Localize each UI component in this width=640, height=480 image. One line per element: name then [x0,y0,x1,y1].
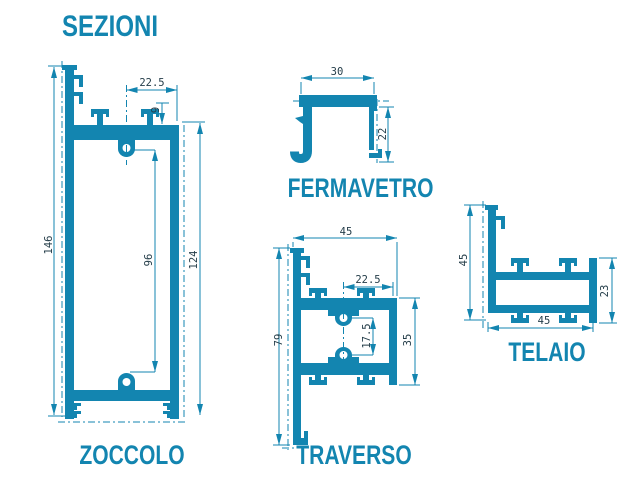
zoccolo-drawing: 146 124 96 22.5 9 [42,55,212,427]
drawing-canvas: SEZIONI [0,0,640,480]
traverso-dim-right-height: 35 [402,334,414,347]
zoccolo-dim-right-height: 124 [188,251,200,270]
telaio-drawing: 45 23 45 [456,196,626,336]
traverso-dim-half-width: 22.5 [355,274,380,286]
traverso-drawing: 45 79 22.5 17.5 35 [270,226,435,456]
traverso-dim-total-height: 79 [273,334,285,347]
zoccolo-dim-total-height: 146 [43,236,55,255]
telaio-profile-shape [485,205,597,323]
traverso-label: TRAVERSO [292,440,417,471]
fermavetro-drawing: 30 22 [276,66,406,176]
fermavetro-dimensions: 30 22 [301,66,394,162]
fermavetro-dim-width: 30 [331,66,344,78]
telaio-dim-left-height: 45 [458,254,470,267]
zoccolo-dim-inner-height: 96 [143,254,155,267]
fermavetro-dim-height: 22 [377,128,389,141]
telaio-dim-right-height: 23 [599,285,611,298]
traverso-dim-width: 45 [340,226,353,238]
fermavetro-left-wall [295,107,308,159]
telaio-dim-bottom-width: 45 [538,315,551,327]
traverso-centerlines [282,244,344,450]
traverso-dim-boss-gap: 17.5 [361,323,373,348]
zoccolo-label: ZOCCOLO [70,440,195,471]
zoccolo-dim-top-width: 22.5 [139,77,164,89]
telaio-label: TELAIO [485,337,610,368]
fermavetro-label: FERMAVETRO [288,173,413,204]
zoccolo-boss-holes [123,144,131,386]
page-title: SEZIONI [62,10,158,44]
zoccolo-profile-shape [62,65,179,419]
zoccolo-dim-top-inset: 9 [150,107,162,113]
zoccolo-centerlines [58,61,186,422]
